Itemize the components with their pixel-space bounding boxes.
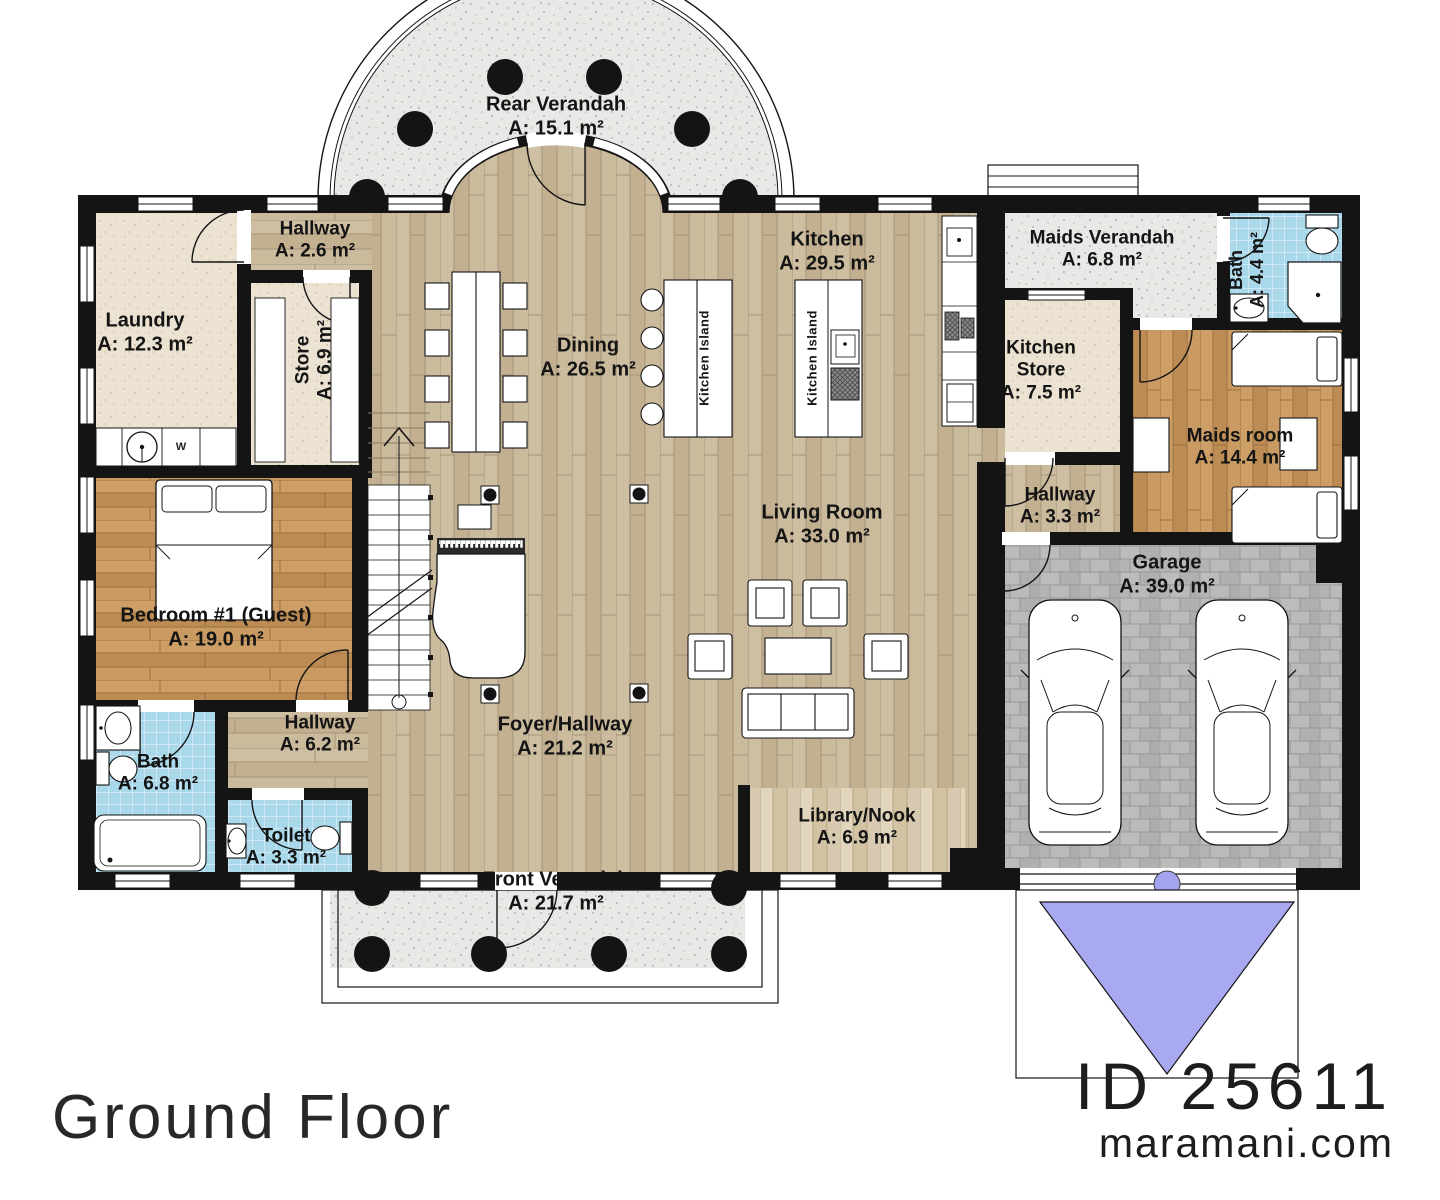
foyer-side-table	[458, 505, 491, 529]
kitchen-counter	[942, 216, 977, 426]
garage-car-1	[1021, 600, 1129, 845]
washer-label: W	[176, 441, 186, 453]
room-label-foyer: Foyer/HallwayA: 21.2 m²	[498, 713, 633, 760]
room-label-toilet: ToiletA: 3.3 m²	[246, 826, 326, 871]
floor-title: Ground Floor	[52, 1082, 453, 1153]
floor-plan-page: Rear VerandahA: 15.1 m² HallwayA: 2.6 m²…	[0, 0, 1440, 1200]
plan-id: ID 25611	[1075, 1048, 1394, 1124]
room-label-living-room: Living RoomA: 33.0 m²	[761, 501, 882, 548]
room-label-kitchen-store: Kitchen StoreA: 7.5 m²	[991, 337, 1091, 404]
staircase	[366, 413, 433, 710]
label-kitchen-island-1: Kitchen Island	[696, 310, 711, 406]
room-label-kitchen: KitchenA: 29.5 m²	[779, 228, 875, 275]
room-label-hallway-right: HallwayA: 3.3 m²	[1020, 485, 1100, 530]
room-label-library: Library/NookA: 6.9 m²	[798, 806, 915, 851]
room-label-bath: BathA: 6.8 m²	[118, 752, 198, 797]
garage-car-2	[1188, 600, 1296, 845]
room-label-laundry: LaundryA: 12.3 m²	[97, 309, 193, 356]
room-label-store: StoreA: 6.9 m²	[293, 320, 338, 400]
room-label-rear-verandah: Rear VerandahA: 15.1 m²	[486, 93, 626, 140]
laundry-appliances	[96, 428, 236, 466]
room-label-front-verandah: Front VerandahA: 21.7 m²	[483, 868, 630, 915]
room-label-maids-verandah: Maids VerandahA: 6.8 m²	[1030, 228, 1175, 273]
label-kitchen-island-2: Kitchen Island	[804, 310, 819, 406]
maids-verandah-steps	[988, 165, 1138, 199]
floor-plan-drawing	[0, 0, 1440, 1200]
room-label-garage: GarageA: 39.0 m²	[1119, 551, 1215, 598]
bedroom-bed	[156, 480, 272, 620]
room-label-dining: DiningA: 26.5 m²	[540, 334, 636, 381]
room-label-maids-room: Maids roomA: 14.4 m²	[1187, 426, 1294, 471]
website-url: maramani.com	[1099, 1120, 1394, 1167]
room-label-maids-bath: BathA: 4.4 m²	[1226, 232, 1268, 308]
room-label-hallway-left: HallwayA: 6.2 m²	[280, 713, 360, 758]
room-label-hallway-top: HallwayA: 2.6 m²	[275, 219, 355, 264]
room-label-bedroom1: Bedroom #1 (Guest)A: 19.0 m²	[120, 604, 311, 651]
